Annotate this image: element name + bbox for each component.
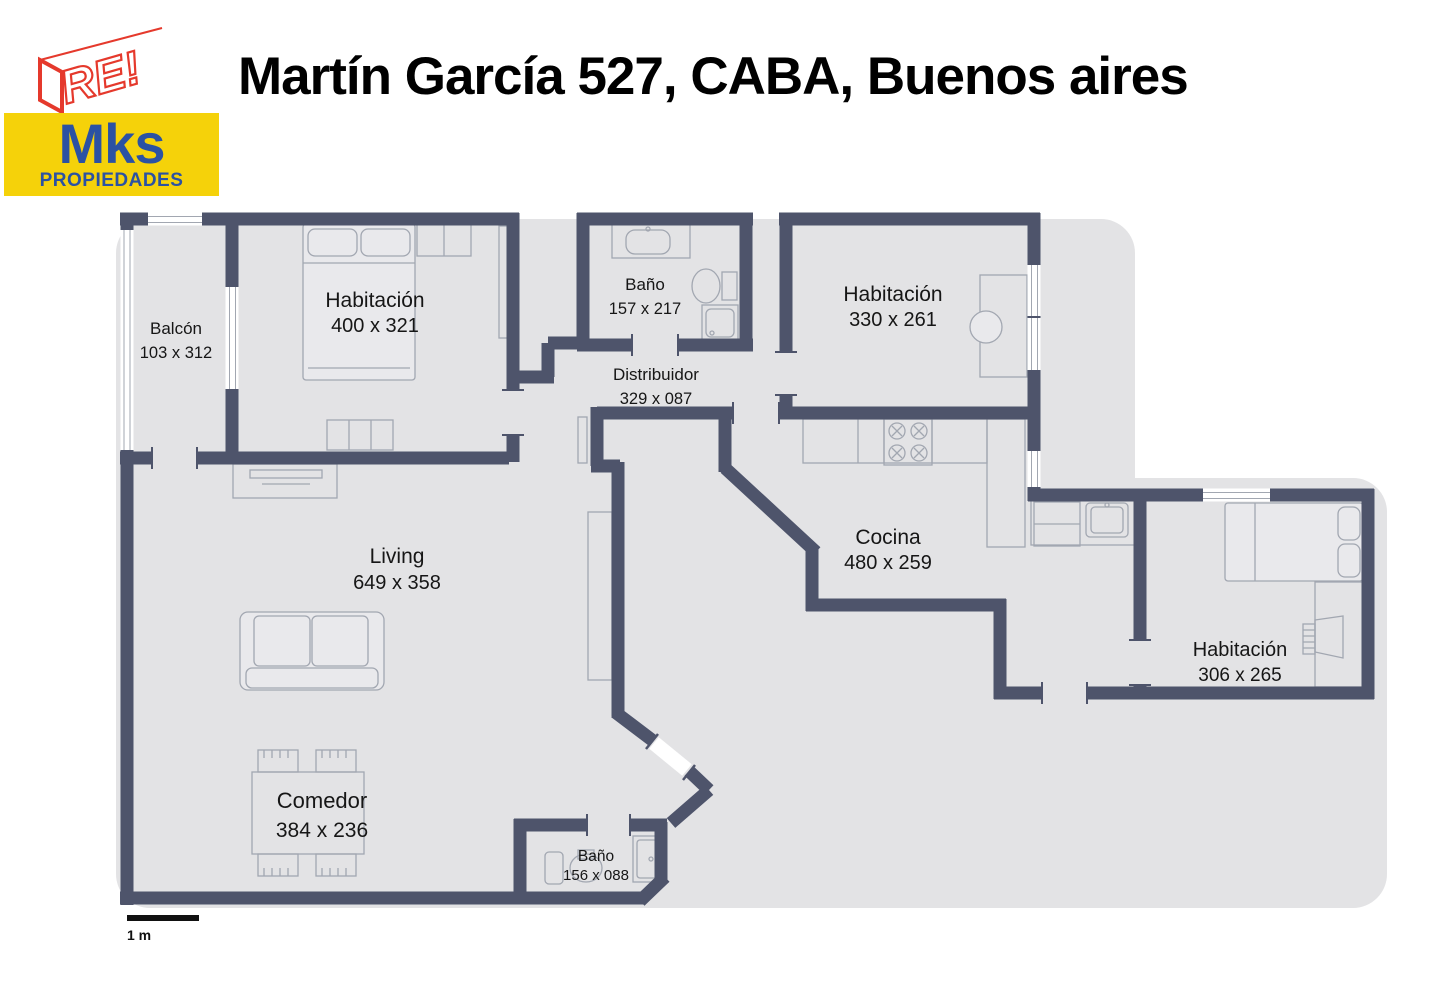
window-kitchen-right	[1028, 451, 1041, 487]
page-title: Martín García 527, CABA, Buenos aires	[238, 46, 1188, 107]
scale-bar: 1 m	[127, 915, 199, 943]
single-bed-icon	[1225, 503, 1363, 581]
room-dims-distribuidor: 329 x 087	[620, 390, 692, 408]
room-label-habitacion-3: Habitación	[1193, 639, 1288, 661]
room-label-balcon: Balcón	[150, 319, 202, 338]
room-label-cocina: Cocina	[855, 526, 921, 549]
room-dims-habitacion-2: 330 x 261	[849, 309, 937, 331]
agency-badge: Mks PROPIEDADES	[4, 113, 219, 196]
agency-subtitle: PROPIEDADES	[4, 171, 219, 190]
room-label-habitacion-1: Habitación	[325, 289, 424, 312]
re-logo-text: RE!	[54, 40, 146, 113]
room-label-habitacion-2: Habitación	[843, 283, 942, 306]
window-balcony-divider	[226, 287, 239, 389]
sofa-icon	[240, 612, 384, 690]
room-label-bano-1: Baño	[625, 275, 665, 294]
agency-name: Mks	[4, 116, 219, 172]
room-dims-balcon: 103 x 312	[140, 344, 212, 362]
window-bedroom2-right	[1028, 265, 1041, 370]
room-label-bano-2: Baño	[578, 848, 614, 865]
room-dims-habitacion-1: 400 x 321	[331, 315, 419, 337]
chair-icon	[970, 311, 1002, 343]
room-label-distribuidor: Distribuidor	[613, 365, 699, 384]
window-balcony-left	[121, 230, 134, 450]
window-bedroom3-top	[1203, 489, 1270, 502]
room-dims-bano-2: 156 x 088	[563, 867, 629, 884]
window-balcony-top	[148, 213, 202, 226]
room-dims-living: 649 x 358	[353, 572, 441, 594]
room-dims-cocina: 480 x 259	[844, 552, 932, 574]
room-dims-habitacion-3: 306 x 265	[1198, 665, 1281, 686]
room-dims-comedor: 384 x 236	[276, 819, 368, 842]
room-label-living: Living	[370, 545, 425, 568]
room-dims-bano-1: 157 x 217	[609, 300, 681, 318]
re-logo: RE!	[20, 8, 180, 120]
scale-bar-label: 1 m	[127, 927, 151, 943]
room-label-comedor: Comedor	[277, 788, 367, 813]
